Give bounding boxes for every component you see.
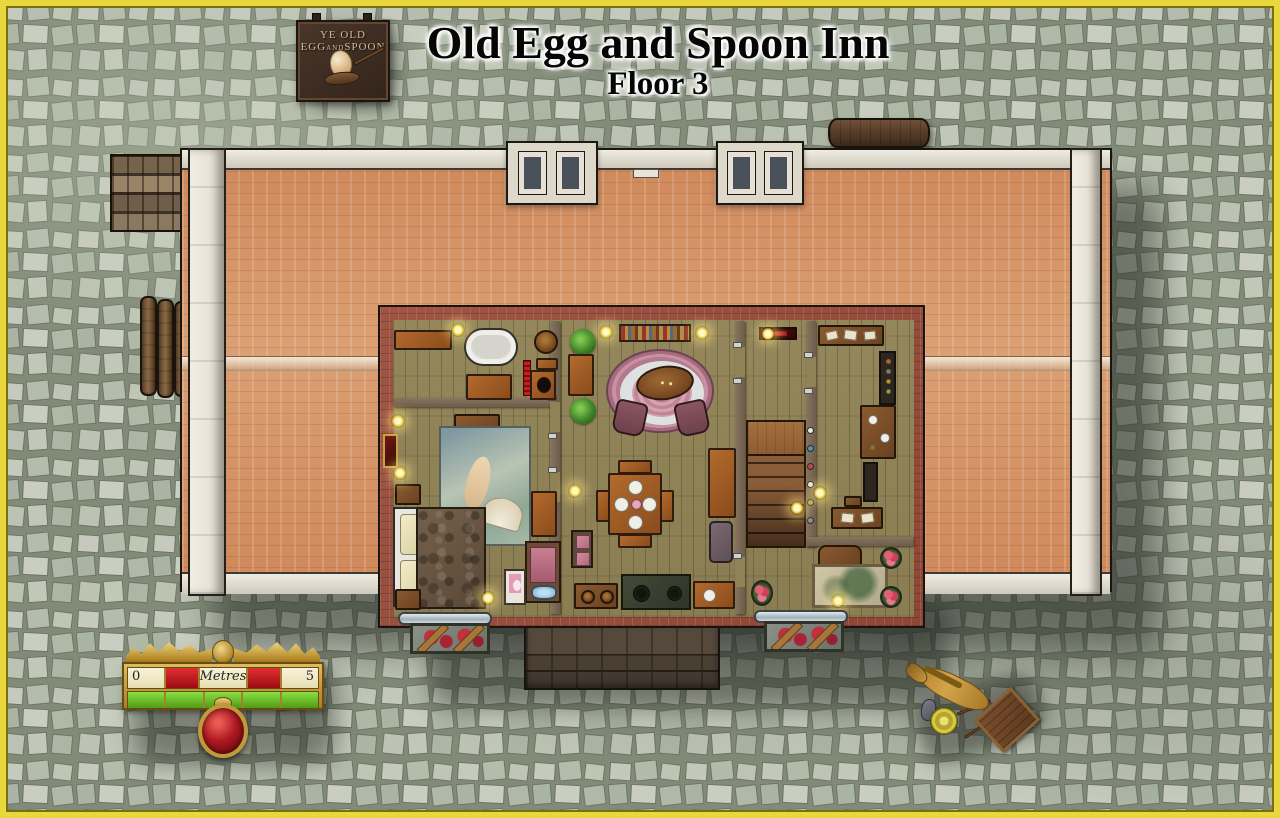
- paper: [843, 329, 857, 341]
- lamp-glow: [393, 466, 407, 480]
- coat-hook: [807, 463, 814, 470]
- door-hinge: [733, 342, 742, 348]
- lamp-glow: [831, 594, 845, 608]
- jar-cabinet: [574, 583, 618, 609]
- scale-cell: [166, 668, 200, 688]
- scale-unit-cell: Metres: [200, 668, 249, 688]
- large-wardrobe: [708, 448, 736, 518]
- dormer-window-left: [506, 141, 598, 205]
- coat-hook: [807, 481, 814, 488]
- dormer-pane: [519, 152, 546, 194]
- dormer-pane: [557, 152, 584, 194]
- floor3-interior-cutaway: [378, 305, 925, 628]
- lamp-glow: [695, 326, 709, 340]
- paper: [841, 512, 855, 523]
- staircase-down: [746, 420, 806, 548]
- flower-pot: [880, 586, 902, 608]
- spice-shelf: [879, 351, 896, 405]
- plate: [868, 415, 878, 425]
- scale-green-cell: [128, 692, 166, 708]
- paper: [860, 512, 874, 524]
- scale-start-cell: 0: [128, 668, 166, 688]
- crib: [525, 541, 561, 603]
- doorway: [806, 357, 816, 387]
- lamp-glow: [481, 591, 495, 605]
- flower-stand: [751, 580, 773, 606]
- scale-end-cell: 5: [282, 668, 318, 688]
- plate: [628, 480, 643, 495]
- coat-hook: [807, 445, 814, 452]
- bathroom-dresser: [466, 374, 512, 400]
- jar: [886, 369, 891, 374]
- lamp-glow: [790, 501, 804, 515]
- jar: [886, 379, 891, 384]
- round-side-table: [534, 330, 558, 354]
- plate: [642, 497, 657, 512]
- changing-table: [504, 569, 526, 605]
- stove-burner: [667, 586, 682, 601]
- door-hinge: [804, 352, 813, 358]
- door-hinge: [548, 467, 557, 473]
- paper-shelf: [818, 325, 884, 346]
- right-chimney: [1070, 148, 1102, 596]
- drawer: [576, 552, 590, 566]
- bookshelf: [619, 324, 691, 342]
- toilet: [530, 370, 556, 400]
- log-pile-log: [157, 299, 174, 398]
- jar: [600, 590, 614, 604]
- timber-beam: [828, 118, 930, 148]
- fur-blanket: [416, 507, 486, 609]
- spoon-icon: [323, 70, 360, 87]
- side-cabinet: [568, 354, 594, 396]
- candle: [668, 381, 674, 387]
- bathtub: [464, 328, 518, 366]
- jar: [581, 590, 595, 604]
- coat-hook: [807, 427, 814, 434]
- lamp-glow: [451, 323, 465, 337]
- lamp-glow: [813, 486, 827, 500]
- dormer-pane: [765, 152, 792, 194]
- bath-shelf: [536, 358, 558, 370]
- potted-plant: [570, 398, 596, 424]
- plate: [614, 497, 629, 512]
- writing-chair: [844, 496, 862, 507]
- jar: [886, 389, 891, 394]
- venus-shell: [480, 493, 527, 533]
- doorway: [735, 557, 745, 587]
- coat-hook: [807, 517, 814, 524]
- plate: [703, 589, 716, 602]
- scale-medallion: [198, 704, 248, 758]
- potted-plant: [570, 329, 596, 355]
- writing-desk: [831, 507, 883, 529]
- wash-basin: [531, 585, 557, 600]
- roof-vent: [633, 169, 659, 178]
- upholstered-bench: [709, 521, 733, 563]
- dining-chair: [618, 534, 652, 548]
- nightstand: [395, 589, 421, 610]
- lamp-glow: [761, 327, 775, 341]
- scale-angel-head: [212, 640, 234, 664]
- wall-painting: [383, 434, 398, 468]
- flower-box: [410, 623, 490, 654]
- lean-to-shingle-roof: [110, 154, 190, 232]
- sign-word-egg: EGG: [301, 41, 327, 53]
- stove-burner: [633, 585, 650, 602]
- straw-hat: [930, 707, 958, 735]
- doorway: [550, 402, 560, 432]
- inn-sign: YE OLD EGGANDSPOON: [296, 20, 390, 102]
- lamp-glow: [391, 414, 405, 428]
- herb-bunch: [870, 445, 875, 450]
- lamp-glow: [568, 484, 582, 498]
- roof-top-trim: [182, 150, 1110, 170]
- sign-line1: YE OLD: [298, 29, 388, 41]
- drawer-unit: [571, 530, 593, 568]
- door-hinge: [733, 378, 742, 384]
- dormer-window-right: [716, 141, 804, 205]
- floor-label: Floor 3: [398, 66, 918, 103]
- dormer-pane: [728, 152, 755, 194]
- paper: [864, 330, 877, 340]
- scale-green-cell: [282, 692, 318, 708]
- door-hinge: [733, 553, 742, 559]
- nightstand: [395, 484, 421, 505]
- battle-map: YE OLD EGGANDSPOON Old Egg and Spoon Inn…: [0, 0, 1280, 818]
- paper: [825, 330, 839, 341]
- flower-pot: [880, 547, 902, 569]
- candle: [660, 380, 666, 386]
- changing-table-top: [509, 574, 521, 593]
- scale-green-cell: [243, 692, 281, 708]
- flower-box-strap: [771, 621, 803, 652]
- dining-chair: [618, 460, 652, 474]
- map-title: Old Egg and Spoon Inn: [398, 16, 918, 69]
- scale-top-row: 0 Metres 5: [127, 667, 319, 689]
- dining-chair: [660, 490, 674, 522]
- food-table: [693, 581, 735, 609]
- coat-hook: [807, 499, 814, 506]
- prep-desk: [860, 405, 896, 459]
- scale-green-cell: [166, 692, 204, 708]
- flower-box-strap: [807, 621, 839, 652]
- narrow-bookcase: [863, 462, 878, 502]
- serving-dish: [631, 499, 642, 510]
- flower-box-strap: [453, 623, 485, 654]
- doorway: [735, 347, 745, 377]
- lamp-glow: [599, 325, 613, 339]
- flower-box-strap: [417, 623, 449, 654]
- left-chimney: [188, 148, 226, 596]
- plate: [628, 515, 643, 530]
- dining-table: [608, 473, 662, 535]
- stone-entry-steps: [524, 626, 720, 690]
- landscape-tapestry-rug: [812, 564, 888, 608]
- log-pile-log: [140, 296, 157, 396]
- jar: [886, 359, 891, 364]
- door-hinge: [804, 388, 813, 394]
- plate: [880, 433, 890, 443]
- drawer: [576, 535, 590, 549]
- stair-landing: [748, 422, 804, 456]
- bedroom-wardrobe: [531, 491, 557, 537]
- door-hinge: [548, 433, 557, 439]
- crib-blanket: [530, 547, 556, 583]
- flower-box: [764, 621, 844, 652]
- cooking-stove: [621, 574, 691, 610]
- scale-cell: [248, 668, 282, 688]
- bathroom-bench: [394, 330, 452, 350]
